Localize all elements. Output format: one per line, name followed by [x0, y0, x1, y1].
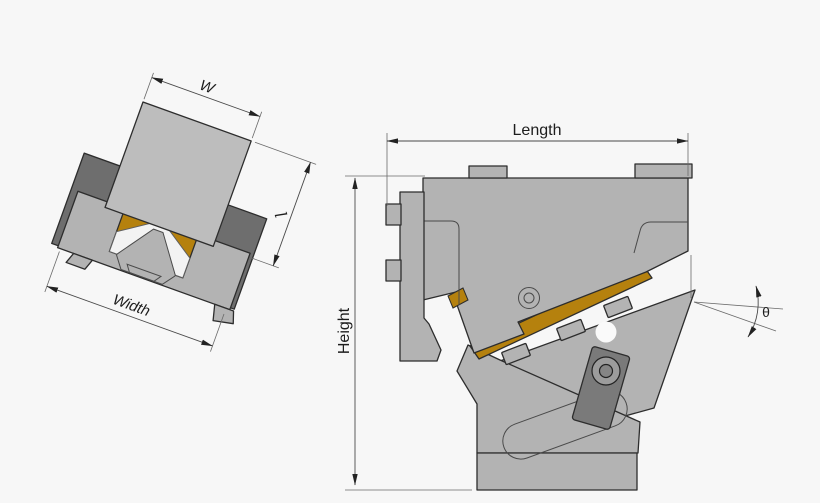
- carriage-hole: [596, 322, 617, 343]
- mounting-bolt-top: [386, 204, 401, 225]
- theta-arc: [748, 286, 758, 337]
- length-dimension-label: Length: [513, 122, 562, 139]
- mounting-bolt-bottom: [386, 260, 401, 281]
- l-extension-line-top: [255, 142, 316, 164]
- w-extension-line-left: [144, 73, 153, 99]
- top-view-group: W Width: [35, 48, 331, 364]
- height-dimension-label: Height: [336, 307, 353, 354]
- theta-dimension-label: θ: [762, 304, 770, 320]
- width-extension-line-left: [45, 252, 60, 292]
- width-dimension-label: Width: [110, 291, 152, 320]
- vibratory-feeder-drawing: W Width l: [0, 0, 820, 503]
- top-tab-right: [635, 164, 692, 178]
- l-dimension-label: l: [272, 209, 292, 220]
- top-tab-left: [469, 166, 507, 178]
- armature-bolt-head: [600, 365, 613, 378]
- technical-drawing-canvas: W Width l: [0, 0, 820, 503]
- side-view-group: Length Height θ: [336, 122, 783, 490]
- base-block: [477, 453, 637, 490]
